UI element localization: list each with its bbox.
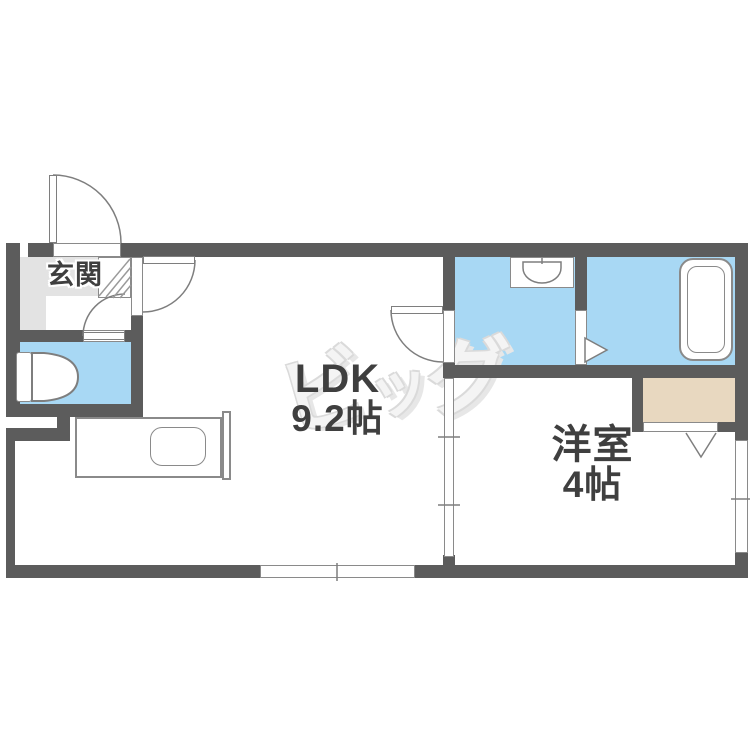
western-room-size: 4帖 (510, 466, 675, 505)
kitchen-counter-end-panel (222, 411, 231, 480)
entrance-door-panel (49, 175, 57, 243)
ldk-size: 9.2帖 (255, 400, 420, 439)
wall-segment (121, 243, 748, 257)
wall-segment (443, 365, 748, 378)
wall-segment (6, 565, 260, 578)
washroom-door-opening (443, 310, 455, 363)
wall-segment (413, 565, 748, 578)
bath-door-opening (575, 310, 587, 365)
wall-segment (443, 257, 455, 310)
kitchen-sink (150, 427, 206, 466)
hall-ldk-door-panel (143, 256, 195, 264)
floor-plan: ビ ッ グ (0, 0, 750, 750)
entrance-door-opening (53, 243, 121, 257)
western-room-name: 洋室 (552, 423, 634, 467)
washroom-door-panel (391, 306, 443, 314)
wall-segment (6, 441, 15, 578)
wall-segment (735, 553, 748, 578)
ldk-name: LDK (295, 357, 380, 401)
western-room-label: 洋室 4帖 (510, 424, 675, 505)
bathtub-inner (687, 266, 725, 353)
toilet-door-panel (83, 332, 125, 340)
wall-segment (6, 428, 70, 441)
wall-segment (131, 315, 143, 404)
closet-folding-door-symbol (686, 433, 716, 457)
entrance-label: 玄関 (19, 261, 131, 289)
wall-segment (735, 243, 748, 440)
ldk-label: LDK 9.2帖 (255, 358, 420, 439)
wall-segment (125, 330, 131, 342)
wall-segment (28, 243, 53, 257)
wall-segment (575, 257, 587, 310)
toilet-tank (16, 352, 32, 402)
wall-segment (19, 330, 83, 342)
closet-floor (643, 378, 735, 422)
wall-segment (718, 422, 736, 432)
toilet-room-floor (19, 342, 131, 404)
washbasin-counter (510, 257, 574, 288)
window-right (735, 440, 748, 553)
hall-floor (46, 296, 131, 330)
hall-ldk-door-opening (131, 257, 143, 316)
wall-segment (6, 404, 143, 417)
hall-ldk-door-swing-arc (143, 260, 195, 312)
entrance-door-swing-arc (53, 175, 121, 243)
window-bottom (260, 565, 415, 578)
sliding-partition-ldk-western-room (444, 378, 454, 557)
